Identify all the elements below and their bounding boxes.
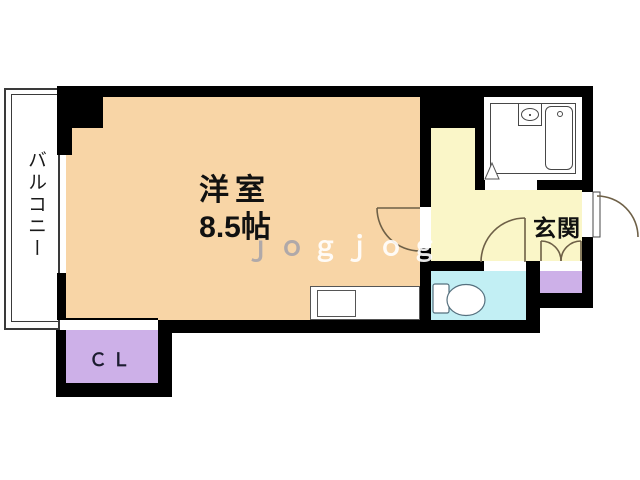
room-label-entrance: 玄関 [533, 209, 581, 243]
room-name: 洋室 [170, 172, 300, 209]
toilet-door-swing-arc [481, 218, 525, 262]
room-label-balcony: バルコニー [22, 150, 49, 260]
toilet-icon [433, 284, 485, 316]
shoebox-door-arc-left [541, 241, 561, 261]
watermark-text-right: ｇｊｏｇ [312, 231, 444, 261]
entrance-door-leaf [593, 192, 600, 237]
room-label-closet: ＣＬ [66, 346, 158, 372]
shoebox-door-arc-right [561, 241, 581, 261]
room-size: 8.5帖 [170, 209, 300, 246]
floor-plan: ｊｏｇｊｏｇ 洋室 8.5帖 玄関 ＣＬ バルコニー [0, 0, 640, 480]
entrance-door-swing-arc [597, 196, 638, 237]
room-label-western: 洋室 8.5帖 [170, 172, 300, 246]
bathroom-door-icon [485, 163, 499, 179]
